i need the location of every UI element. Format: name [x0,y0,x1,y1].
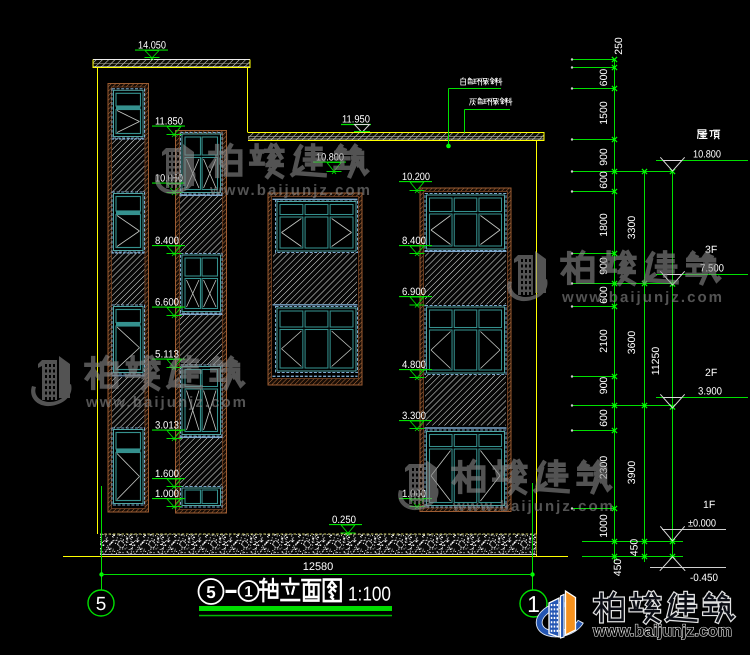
svg-text:450: 450 [629,539,641,557]
svg-text:www.baijunjz.com: www.baijunjz.com [592,623,732,640]
svg-text:3600: 3600 [626,331,638,355]
svg-text:3900: 3900 [626,461,638,485]
svg-text:2F: 2F [705,367,717,379]
svg-text:5: 5 [206,583,215,602]
svg-text:3300: 3300 [626,216,638,240]
svg-text:-0.450: -0.450 [690,572,718,584]
svg-text:3.900: 3.900 [698,386,722,398]
svg-text:10.800: 10.800 [693,149,721,161]
svg-text:250: 250 [613,37,625,55]
svg-text:600: 600 [598,69,610,87]
svg-text:1000: 1000 [598,514,610,538]
svg-text:600: 600 [598,409,610,427]
svg-text:±0.000: ±0.000 [688,518,716,530]
svg-text:600: 600 [598,171,610,189]
svg-text:900: 900 [598,148,610,166]
svg-text:1500: 1500 [598,101,610,125]
svg-text:2100: 2100 [598,329,610,353]
svg-text:1: 1 [244,584,252,601]
svg-text:1F: 1F [703,499,715,511]
svg-text:11250: 11250 [650,347,662,376]
svg-text:1:100: 1:100 [348,584,391,606]
svg-text:1800: 1800 [598,213,610,237]
svg-text:1: 1 [527,591,540,617]
svg-text:900: 900 [598,377,610,395]
svg-text:11.950: 11.950 [342,114,370,126]
svg-text:5: 5 [96,594,107,615]
svg-text:12580: 12580 [303,561,334,573]
svg-text:450: 450 [612,559,624,577]
